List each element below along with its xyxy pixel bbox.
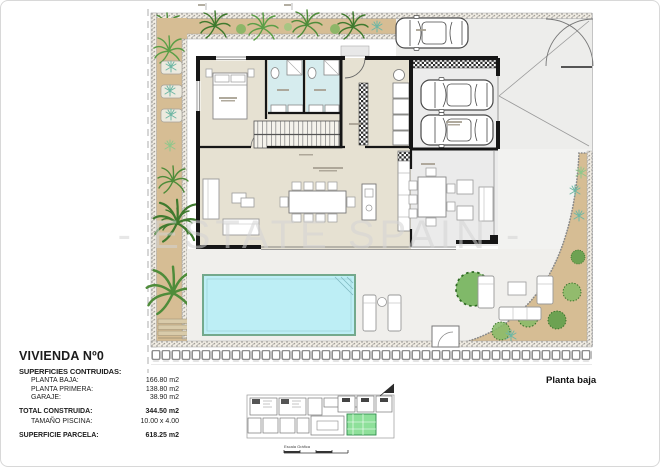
surface-row-total: TOTAL CONSTRUIDA: 344.50 m2 — [19, 408, 179, 416]
surface-row: TAMAÑO PISCINA: 10.00 x 4.00 — [19, 418, 179, 426]
surface-row-parcela: SUPERFICIE PARCELA: 618.25 m2 — [19, 432, 179, 440]
surface-row: PLANTA BAJA: 166.80 m2 — [19, 377, 179, 385]
surface-row: GARAJE: 38.90 m2 — [19, 394, 179, 402]
key-plan — [247, 395, 394, 438]
pool — [203, 275, 355, 335]
title-block: VIVIENDA Nº0 SUPERFICIES CONTRUIDAS: PLA… — [19, 349, 179, 440]
car-driveway — [396, 16, 468, 51]
north-arrow-icon — [380, 384, 394, 396]
surface-row: PLANTA PRIMERA: 138.80 m2 — [19, 386, 179, 394]
garden-gate — [432, 326, 459, 347]
car-garage-2 — [421, 113, 493, 148]
car-garage-1 — [421, 78, 493, 113]
fence-chain — [151, 350, 592, 365]
key-plan-highlight-unit — [347, 414, 376, 435]
surfaces-subtitle: SUPERFICIES CONTRUIDAS: — [19, 367, 179, 376]
floor-label: Planta baja — [546, 375, 596, 386]
stairs — [254, 121, 342, 148]
floor-plan-sheet: Escala Gráfica - ESTATE SPAIN - VIVIENDA… — [0, 0, 660, 467]
plan-title: VIVIENDA Nº0 — [19, 349, 179, 363]
scale-bar-label: Escala Gráfica — [284, 444, 311, 449]
scale-bar: Escala Gráfica — [284, 444, 348, 453]
